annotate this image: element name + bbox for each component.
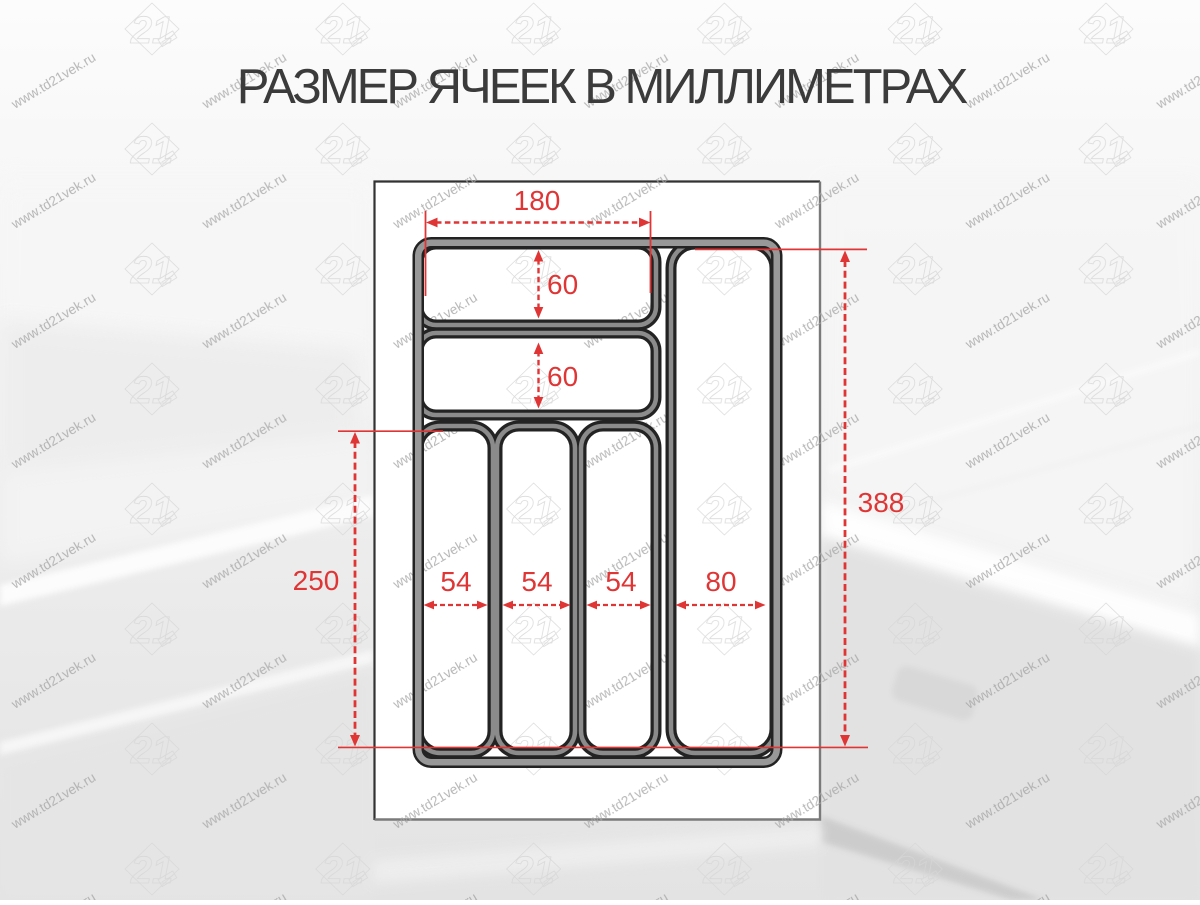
svg-text:60: 60 [547,269,578,300]
svg-text:54: 54 [521,566,552,597]
svg-text:РАЗМЕР ЯЧЕЕК В МИЛЛИМЕТРАХ: РАЗМЕР ЯЧЕЕК В МИЛЛИМЕТРАХ [237,60,968,114]
svg-text:388: 388 [858,487,905,518]
svg-text:250: 250 [293,565,340,596]
svg-text:180: 180 [514,185,561,216]
svg-text:54: 54 [440,566,471,597]
svg-text:80: 80 [705,566,736,597]
svg-text:60: 60 [547,361,578,392]
svg-text:54: 54 [605,566,636,597]
